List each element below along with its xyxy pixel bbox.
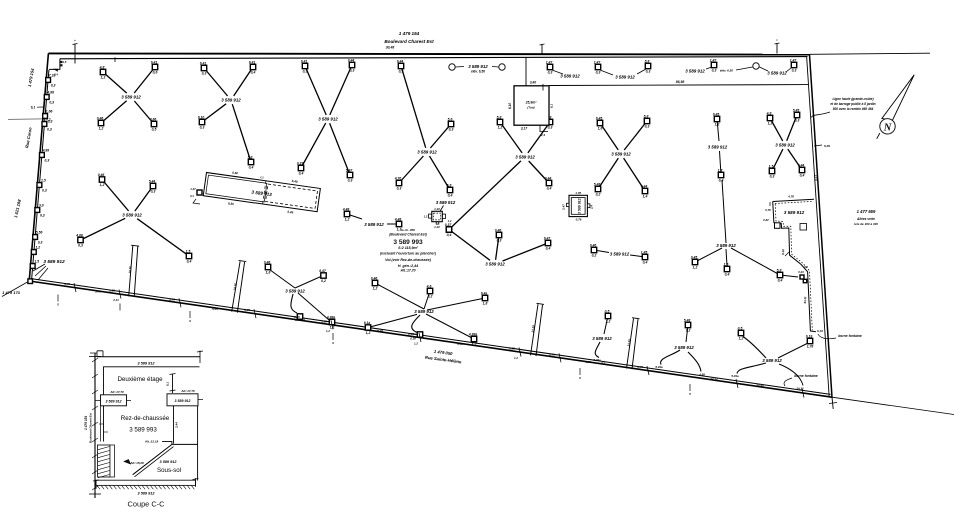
svg-text:1,45: 1,45 [641, 250, 648, 254]
svg-text:Alt.:17,70: Alt.:17,70 [399, 269, 415, 273]
svg-text:0,3: 0,3 [38, 240, 43, 244]
svg-text:2,47: 2,47 [562, 204, 566, 211]
svg-text:5,56: 5,56 [36, 230, 43, 234]
svg-text:4,88a: 4,88a [468, 332, 478, 336]
svg-text:1,8: 1,8 [483, 301, 488, 305]
svg-text:1,2: 1,2 [448, 219, 452, 223]
svg-text:5,49: 5,49 [64, 282, 70, 286]
svg-text:5,49: 5,49 [637, 365, 643, 369]
svg-text:1,2: 1,2 [715, 122, 720, 126]
svg-text:2,44: 2,44 [175, 422, 179, 429]
svg-text:6,41: 6,41 [249, 60, 256, 64]
svg-text:3 589 912: 3 589 912 [560, 74, 580, 79]
svg-text:Allées verte: Allées verte [856, 217, 875, 221]
svg-text:5,50: 5,50 [232, 171, 239, 176]
svg-text:1,2: 1,2 [326, 329, 330, 333]
svg-text:borne fontaine: borne fontaine [794, 374, 818, 378]
svg-text:3,0: 3,0 [39, 203, 44, 207]
svg-text:500 avec la remble 468 464: 500 avec la remble 468 464 [833, 107, 874, 111]
svg-text:61,11: 61,11 [803, 296, 807, 304]
svg-text:0,46: 0,46 [264, 260, 271, 264]
svg-text:3 589 912: 3 589 912 [611, 152, 631, 157]
svg-text:0,45: 0,45 [691, 255, 698, 259]
svg-text:0,4: 0,4 [546, 246, 551, 250]
svg-text:0,4: 0,4 [448, 193, 453, 197]
svg-text:0,3: 0,3 [601, 361, 605, 365]
svg-text:5,49: 5,49 [95, 290, 101, 294]
svg-text:5,49: 5,49 [377, 329, 383, 333]
svg-text:0,46: 0,46 [495, 228, 502, 232]
svg-text:5,48: 5,48 [594, 182, 601, 186]
svg-text:3 589 912: 3 589 912 [775, 143, 795, 148]
svg-text:Alt.:15,08: Alt.:15,08 [129, 461, 144, 465]
svg-text:1,2: 1,2 [414, 342, 418, 346]
svg-text:5,44: 5,44 [798, 163, 805, 167]
svg-text:1,2: 1,2 [100, 183, 105, 187]
svg-text:7,32: 7,32 [49, 73, 56, 77]
svg-text:1,2: 1,2 [768, 121, 773, 125]
svg-text:6,1: 6,1 [166, 382, 170, 386]
svg-text:4,70: 4,70 [394, 176, 402, 180]
svg-text:6,41: 6,41 [151, 60, 158, 64]
svg-text:6,09: 6,09 [824, 144, 830, 148]
svg-text:1,98: 1,98 [109, 289, 115, 293]
svg-text:4,8: 4,8 [99, 65, 105, 69]
svg-text:et de barrage publié à 8 jardi: et de barrage publié à 8 jardin [830, 102, 875, 106]
svg-text:0,76: 0,76 [765, 208, 771, 212]
svg-text:0,3: 0,3 [202, 71, 207, 75]
svg-text:3 589 993: 3 589 993 [393, 239, 423, 246]
svg-text:1,8: 1,8 [718, 168, 723, 172]
svg-text:25,9m²: 25,9m² [525, 101, 538, 105]
svg-text:5,8: 5,8 [497, 115, 502, 119]
svg-text:Boulevard Charest Est: Boulevard Charest Est [384, 39, 434, 44]
svg-text:2,4: 2,4 [540, 133, 546, 137]
svg-text:0,3: 0,3 [40, 213, 45, 217]
svg-text:0,3: 0,3 [548, 70, 553, 74]
svg-text:0,76: 0,76 [576, 218, 582, 222]
svg-text:5,49a: 5,49a [655, 365, 663, 369]
svg-text:borne fontaine: borne fontaine [838, 334, 862, 338]
svg-text:1,2: 1,2 [373, 286, 378, 290]
svg-text:0,3: 0,3 [190, 194, 194, 198]
svg-text:(excluant l'ouverture au planc: (excluant l'ouverture au plancher) [380, 252, 437, 256]
svg-text:0,3: 0,3 [49, 100, 54, 104]
svg-text:5,45: 5,45 [793, 108, 800, 112]
svg-text:8,13: 8,13 [814, 175, 818, 181]
svg-text:3 589 912: 3 589 912 [784, 210, 805, 215]
svg-text:1,2: 1,2 [101, 75, 106, 79]
svg-text:0,3: 0,3 [792, 68, 797, 72]
svg-text:4,48: 4,48 [394, 217, 402, 221]
svg-text:1,2: 1,2 [301, 318, 306, 322]
svg-text:1,2: 1,2 [472, 342, 477, 346]
svg-text:3 589 912: 3 589 912 [122, 213, 142, 218]
svg-text:1,98: 1,98 [321, 319, 327, 323]
svg-text:4,8: 4,8 [766, 111, 772, 115]
svg-text:1,22: 1,22 [434, 225, 440, 229]
svg-text:0,30: 0,30 [410, 337, 416, 341]
svg-text:3 589 912: 3 589 912 [43, 259, 65, 265]
svg-text:Rez-de-chaussée: Rez-de-chaussée [121, 415, 170, 422]
svg-text:5,49a: 5,49a [731, 374, 739, 378]
svg-text:1,2: 1,2 [345, 217, 350, 221]
svg-text:4,88: 4,88 [75, 233, 83, 237]
svg-text:0,2: 0,2 [428, 294, 433, 298]
svg-text:Deuxième étage: Deuxième étage [117, 376, 163, 383]
svg-text:1,66: 1,66 [46, 109, 53, 113]
svg-text:3 589 912: 3 589 912 [106, 399, 122, 403]
svg-text:3,17: 3,17 [521, 127, 527, 131]
svg-text:6,19: 6,19 [806, 334, 813, 338]
svg-text:0,3: 0,3 [200, 125, 205, 129]
svg-text:0,3: 0,3 [399, 69, 404, 73]
svg-text:élév. 6,50: élév. 6,50 [720, 69, 734, 73]
svg-text:1,4: 1,4 [643, 194, 648, 198]
svg-text:5,47: 5,47 [346, 168, 354, 172]
svg-text:5,50: 5,50 [228, 201, 235, 206]
svg-text:1,5: 1,5 [724, 262, 729, 266]
svg-text:0,4: 0,4 [299, 171, 304, 175]
svg-text:3 589 912: 3 589 912 [762, 358, 782, 363]
svg-text:6,10: 6,10 [508, 103, 512, 109]
svg-text:0,46: 0,46 [97, 116, 104, 120]
svg-text:3 589 912: 3 589 912 [414, 309, 434, 314]
svg-text:3 589 912: 3 589 912 [610, 252, 630, 257]
svg-text:0,4: 0,4 [187, 259, 192, 263]
svg-text:0,3: 0,3 [78, 243, 83, 247]
svg-text:3 589 912: 3 589 912 [468, 64, 488, 69]
svg-text:3 589 912: 3 589 912 [138, 361, 156, 365]
svg-text:4,96: 4,96 [584, 360, 591, 364]
svg-text:6,10: 6,10 [781, 249, 786, 255]
svg-text:6,41: 6,41 [200, 61, 207, 65]
svg-text:3 589 912: 3 589 912 [685, 69, 705, 74]
svg-text:1 477 659: 1 477 659 [857, 209, 876, 214]
svg-text:1,2: 1,2 [99, 126, 104, 130]
svg-text:0,5: 0,5 [152, 127, 157, 131]
svg-text:2,4: 2,4 [590, 205, 594, 210]
svg-text:0,4: 0,4 [719, 178, 724, 182]
svg-text:1,8: 1,8 [266, 270, 271, 274]
svg-text:3 589 912: 3 589 912 [121, 95, 141, 100]
svg-text:1,98: 1,98 [509, 347, 515, 351]
svg-text:4,88a: 4,88a [326, 315, 336, 319]
svg-text:0,46: 0,46 [590, 243, 597, 247]
svg-text:5,8: 5,8 [777, 268, 782, 272]
svg-text:0,3: 0,3 [47, 127, 52, 131]
svg-text:Alt.:12,19: Alt.:12,19 [144, 440, 159, 444]
svg-text:1 479 173: 1 479 173 [2, 290, 21, 295]
svg-text:24,40: 24,40 [755, 384, 764, 388]
svg-text:4,78: 4,78 [787, 195, 794, 199]
svg-text:0,5: 0,5 [605, 309, 610, 313]
svg-text:6,47: 6,47 [544, 236, 552, 240]
svg-text:0,4: 0,4 [547, 186, 552, 190]
svg-text:6,47: 6,47 [319, 269, 327, 273]
svg-text:1,78: 1,78 [807, 344, 814, 348]
svg-text:5,49a: 5,49a [593, 358, 601, 362]
svg-text:3 589 912: 3 589 912 [285, 289, 305, 294]
svg-text:1,5: 1,5 [186, 249, 191, 253]
svg-text:4,88: 4,88 [42, 148, 50, 152]
svg-text:0,3: 0,3 [497, 238, 502, 242]
svg-text:1,2: 1,2 [514, 356, 518, 360]
svg-text:3 589 912: 3 589 912 [138, 492, 156, 496]
svg-text:2,13: 2,13 [112, 298, 119, 302]
svg-text:1,22: 1,22 [434, 207, 440, 211]
svg-text:3 589 912: 3 589 912 [592, 336, 612, 341]
svg-text:H. gén.:2,44: H. gén.:2,44 [398, 264, 418, 268]
svg-text:5,7a: 5,7a [549, 352, 555, 356]
svg-text:0,24: 0,24 [798, 270, 804, 274]
svg-text:6,1: 6,1 [46, 117, 51, 121]
svg-text:5,49: 5,49 [287, 210, 294, 215]
svg-text:lots de 300 à 300: lots de 300 à 300 [854, 222, 878, 226]
svg-text:6,41: 6,41 [301, 59, 308, 63]
svg-text:30,48: 30,48 [386, 46, 395, 50]
svg-text:3 589 993: 3 589 993 [129, 427, 157, 434]
svg-text:86,98: 86,98 [676, 80, 685, 84]
svg-text:0,3: 0,3 [548, 125, 553, 129]
svg-text:0,2: 0,2 [592, 253, 597, 257]
svg-text:0,4: 0,4 [725, 272, 730, 276]
svg-text:1,2: 1,2 [366, 331, 371, 335]
svg-text:3 589 912: 3 589 912 [716, 243, 736, 248]
svg-text:6,1: 6,1 [550, 104, 554, 109]
svg-text:3 589 912: 3 589 912 [318, 117, 338, 122]
svg-text:1,78: 1,78 [575, 191, 581, 195]
svg-text:3 589 912: 3 589 912 [436, 200, 456, 205]
svg-text:3 589 912: 3 589 912 [175, 399, 191, 403]
svg-text:5,48: 5,48 [684, 318, 691, 322]
svg-text:0,37: 0,37 [297, 161, 305, 165]
svg-text:3 589 912: 3 589 912 [417, 150, 437, 155]
svg-text:0,4: 0,4 [643, 260, 648, 264]
svg-text:1,2: 1,2 [693, 265, 698, 269]
svg-text:1,2: 1,2 [739, 336, 744, 340]
svg-text:1,2: 1,2 [606, 319, 611, 323]
svg-text:1,2: 1,2 [498, 125, 503, 129]
svg-text:0,3: 0,3 [596, 70, 601, 74]
svg-text:1,47: 1,47 [190, 187, 196, 191]
svg-text:0,4: 0,4 [800, 173, 805, 177]
svg-text:3 589 912: 3 589 912 [577, 198, 581, 214]
svg-text:6,1: 6,1 [31, 106, 36, 110]
svg-text:(Boulevard Charest Est): (Boulevard Charest Est) [389, 232, 427, 236]
svg-text:5,49: 5,49 [291, 179, 298, 184]
svg-text:1,5: 1,5 [63, 60, 67, 64]
svg-text:5,8: 5,8 [447, 183, 452, 187]
svg-text:0,5: 0,5 [738, 326, 743, 330]
svg-text:6,10: 6,10 [198, 115, 205, 119]
svg-text:0,44: 0,44 [348, 58, 355, 62]
svg-text:1,5: 1,5 [34, 259, 39, 263]
svg-text:6,4a: 6,4a [481, 291, 488, 295]
svg-text:0,3: 0,3 [712, 68, 717, 72]
svg-text:0,4: 0,4 [249, 165, 254, 169]
svg-text:N: N [883, 122, 892, 133]
svg-text:0,5: 0,5 [804, 265, 808, 269]
svg-text:3 589 912: 3 589 912 [485, 262, 505, 267]
svg-text:3 589 912: 3 589 912 [767, 71, 787, 76]
svg-text:6,45: 6,45 [713, 112, 720, 116]
svg-text:5,44: 5,44 [149, 179, 156, 183]
svg-text:0,6: 0,6 [153, 70, 158, 74]
svg-text:4,48: 4,48 [342, 207, 350, 211]
svg-text:5,49: 5,49 [169, 297, 175, 301]
svg-text:4,86: 4,86 [149, 117, 157, 121]
svg-text:0,3: 0,3 [151, 189, 156, 193]
svg-text:4,88: 4,88 [46, 90, 54, 94]
svg-text:5,8: 5,8 [645, 59, 650, 63]
svg-text:élév. 6,50: élév. 6,50 [471, 70, 485, 74]
svg-text:(Toit): (Toit) [527, 106, 534, 110]
svg-text:0,46: 0,46 [98, 173, 105, 177]
svg-text:Sous-sol: Sous-sol [157, 467, 181, 474]
svg-text:5,8: 5,8 [644, 114, 649, 118]
svg-text:1,2: 1,2 [424, 215, 428, 219]
svg-text:1,47: 1,47 [546, 60, 554, 64]
svg-text:0,3: 0,3 [795, 118, 800, 122]
svg-text:Ligne haute (grande-voûte): Ligne haute (grande-voûte) [832, 97, 873, 101]
svg-text:1,47: 1,47 [710, 58, 718, 62]
svg-text:3 589 912: 3 589 912 [615, 75, 635, 80]
svg-text:4,88: 4,88 [698, 373, 705, 377]
svg-text:3,40: 3,40 [530, 81, 536, 85]
svg-text:0,2: 0,2 [596, 192, 601, 196]
svg-text:10,36: 10,36 [128, 266, 133, 274]
svg-text:1,5: 1,5 [41, 178, 46, 182]
svg-text:0,3: 0,3 [42, 188, 47, 192]
svg-text:0,44: 0,44 [545, 176, 552, 180]
svg-text:3 589 912: 3 589 912 [364, 222, 384, 227]
svg-text:0,3: 0,3 [348, 178, 353, 182]
svg-text:1 479 154: 1 479 154 [399, 31, 420, 36]
svg-text:0,82: 0,82 [763, 218, 769, 222]
svg-text:6,19: 6,19 [817, 329, 823, 333]
svg-text:4,6: 4,6 [426, 284, 432, 288]
svg-text:0,3: 0,3 [303, 69, 308, 73]
svg-text:0,3: 0,3 [45, 158, 50, 162]
svg-text:3 589 912: 3 589 912 [221, 98, 241, 103]
svg-text:0,3: 0,3 [51, 83, 56, 87]
svg-text:5,49: 5,49 [212, 307, 218, 311]
svg-text:Vol.(voir Rez-de-chaussée): Vol.(voir Rez-de-chaussée) [385, 258, 432, 262]
svg-text:0,4: 0,4 [251, 70, 256, 74]
svg-text:0,3: 0,3 [350, 68, 355, 72]
svg-text:6,1a: 6,1a [364, 321, 371, 325]
svg-text:0,3: 0,3 [646, 69, 651, 73]
svg-text:0,3: 0,3 [397, 186, 402, 190]
svg-text:8,69a: 8,69a [408, 332, 416, 336]
svg-text:S:2 115,9m²: S:2 115,9m² [398, 246, 419, 250]
svg-text:0,4: 0,4 [447, 233, 452, 237]
svg-text:0,4: 0,4 [778, 278, 783, 282]
svg-text:6,45: 6,45 [596, 116, 603, 120]
svg-text:5,49: 5,49 [295, 318, 301, 322]
svg-text:0,46: 0,46 [371, 276, 378, 280]
svg-text:0,3: 0,3 [645, 124, 650, 128]
svg-text:1,6: 1,6 [598, 126, 603, 130]
svg-text:1,47: 1,47 [594, 60, 602, 64]
svg-text:0,3: 0,3 [449, 127, 454, 131]
svg-text:Alt.:17,70: Alt.:17,70 [109, 390, 124, 394]
svg-text:Boulevard Charest Est: Boulevard Charest Est [89, 412, 93, 443]
svg-text:1,47: 1,47 [790, 58, 798, 62]
svg-text:0,3: 0,3 [770, 174, 775, 178]
svg-text:Alt.:17,70: Alt.:17,70 [180, 389, 195, 393]
svg-text:1,5: 1,5 [769, 164, 774, 168]
svg-text:0,44: 0,44 [641, 184, 648, 188]
svg-text:5,6: 5,6 [448, 117, 453, 121]
svg-text:5,49: 5,49 [457, 342, 463, 346]
svg-text:1,2: 1,2 [35, 245, 40, 249]
svg-text:3,05: 3,05 [244, 308, 250, 312]
svg-text:3 589 912: 3 589 912 [515, 155, 535, 160]
svg-text:1 479 154: 1 479 154 [84, 416, 88, 430]
svg-text:0,2: 0,2 [321, 279, 326, 283]
svg-text:3 589 912: 3 589 912 [708, 145, 728, 150]
svg-text:24,12: 24,12 [709, 377, 718, 381]
svg-text:5,8: 5,8 [248, 155, 253, 159]
svg-text:3 589 912: 3 589 912 [674, 345, 694, 350]
svg-text:Coupe C-C: Coupe C-C [128, 500, 166, 509]
svg-text:3 589 912: 3 589 912 [160, 460, 178, 464]
svg-text:6,44: 6,44 [397, 59, 404, 63]
svg-text:1,2: 1,2 [686, 328, 691, 332]
